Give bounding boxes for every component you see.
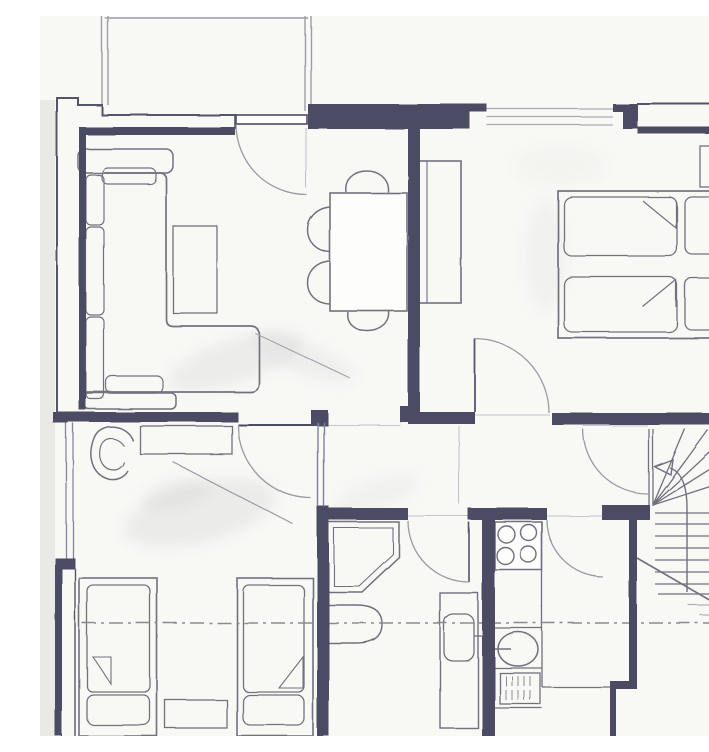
floor-plan-drawing [40, 16, 709, 736]
wall-hall-stub [602, 505, 650, 520]
door-leaf [236, 115, 307, 124]
wall-top-inner-left [82, 127, 235, 135]
wall-stairs [629, 520, 637, 683]
dining-table [330, 193, 407, 311]
wall-kitchen-top [468, 508, 547, 520]
wall-stairs-lower [610, 687, 616, 736]
wall-kitchen-left [482, 508, 495, 736]
wall-bathroom-top [323, 508, 408, 520]
wall-left-inner [79, 127, 86, 410]
wall-central [408, 128, 420, 412]
wall-bedroom-bottom-left [408, 412, 475, 424]
wall-left-notch [53, 412, 68, 423]
floor-plan-scan [40, 16, 709, 736]
wall-bedroom-bottom-right [552, 413, 709, 425]
wall-bathroom-left [317, 506, 329, 736]
wall-top-middle-pier [308, 104, 487, 129]
wall-divider-left [53, 412, 238, 422]
wall-top-inner-right [638, 127, 709, 134]
hob [495, 522, 542, 570]
wall-divider-cap [311, 410, 328, 426]
scan-margin-shadow [40, 100, 55, 736]
